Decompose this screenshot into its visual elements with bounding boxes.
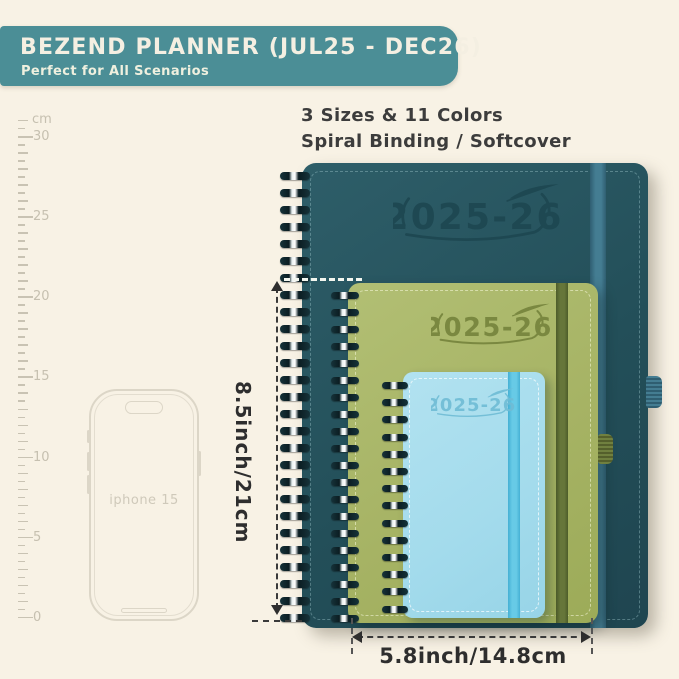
spiral-coil	[280, 563, 310, 571]
ruler-tick	[18, 449, 25, 451]
ruler-tick	[18, 136, 33, 138]
spiral-coil	[280, 223, 310, 231]
spiral-coil	[331, 343, 359, 350]
spiral-coil	[331, 598, 359, 605]
ruler-tick	[18, 232, 28, 234]
spiral-coil	[331, 462, 359, 469]
ruler-tick	[18, 433, 25, 435]
ruler-tick	[18, 368, 25, 370]
ruler-tick	[18, 545, 25, 547]
ruler-tick	[18, 128, 25, 130]
ruler-tick	[18, 497, 25, 499]
product-subtitle: Perfect for All Scenarios	[21, 64, 209, 79]
height-extension-line-bottom	[252, 620, 302, 622]
ruler-tick	[18, 144, 25, 146]
product-banner: BEZEND PLANNER (JUL25 - DEC26) Perfect f…	[0, 26, 458, 86]
ruler-tick	[18, 489, 28, 491]
height-arrow-up-icon	[271, 281, 283, 291]
spiral-coil	[331, 547, 359, 554]
spiral-coil	[280, 461, 310, 469]
ruler-tick	[18, 609, 25, 611]
ruler-tick	[18, 601, 28, 603]
ruler-tick	[18, 192, 25, 194]
planner-large-pen-loop	[646, 376, 662, 408]
ruler-tick	[18, 481, 25, 483]
home-indicator	[121, 608, 167, 613]
spiral-coil	[331, 326, 359, 333]
spiral-coil	[331, 581, 359, 588]
ruler-tick	[18, 441, 28, 443]
product-size-diagram: BEZEND PLANNER (JUL25 - DEC26) Perfect f…	[0, 0, 679, 679]
width-arrow-right-icon	[581, 631, 591, 643]
ruler-tick	[18, 392, 28, 394]
spiral-coil	[331, 564, 359, 571]
spiral-coil	[382, 434, 408, 441]
ruler-tick	[18, 328, 28, 330]
ruler-tick	[18, 160, 25, 162]
ruler-number: 15	[33, 369, 50, 384]
volume-down-button	[87, 475, 90, 494]
ruler-tick	[18, 176, 25, 178]
ruler-tick	[18, 288, 25, 290]
spiral-coil	[382, 382, 408, 389]
year-label: 2025-26	[431, 395, 515, 416]
spiral-coil	[331, 530, 359, 537]
spiral-coil	[331, 394, 359, 401]
spiral-coil	[382, 416, 408, 423]
ruler-tick	[18, 465, 25, 467]
spiral-coil	[382, 468, 408, 475]
ruler-tick	[18, 409, 28, 411]
ruler-tick	[18, 400, 25, 402]
spiral-coil	[382, 571, 408, 578]
ruler-tick	[18, 569, 28, 571]
year-label: 2025-26	[393, 197, 561, 238]
spiral-coil	[382, 588, 408, 595]
ruler-tick	[18, 561, 25, 563]
spiral-coil	[331, 615, 359, 622]
ruler-tick	[18, 320, 25, 322]
year-emblem-graphic: 2025-26	[431, 303, 551, 348]
year-emblem-graphic: 2025-26	[431, 388, 515, 419]
width-dimension-line	[357, 636, 587, 638]
ruler-tick	[18, 224, 25, 226]
spiral-coil	[280, 597, 310, 605]
mute-switch	[87, 430, 90, 443]
ruler-number: 30	[33, 129, 50, 144]
ruler-tick	[18, 304, 25, 306]
spiral-coil	[382, 537, 408, 544]
spiral-coil	[382, 451, 408, 458]
spiral-coil	[280, 172, 310, 180]
spiral-coil	[280, 325, 310, 333]
feature-line-binding: Spiral Binding / Softcover	[301, 131, 571, 152]
spiral-coil	[382, 485, 408, 492]
spiral-coil	[331, 292, 359, 299]
phone-outline: iphone 15	[89, 389, 199, 621]
spiral-coil	[382, 502, 408, 509]
ruler-tick	[18, 296, 33, 298]
ruler-tick	[18, 312, 28, 314]
spiral-coil	[280, 546, 310, 554]
spiral-coil	[382, 399, 408, 406]
ruler-tick	[18, 529, 25, 531]
ruler-tick	[18, 521, 28, 523]
ruler-tick	[18, 280, 28, 282]
spiral-coil	[280, 444, 310, 452]
ruler-tick	[18, 537, 33, 539]
ruler-tick	[18, 457, 33, 459]
feature-line-sizes-colors: 3 Sizes & 11 Colors	[301, 105, 503, 126]
planner-medium-year-emblem: 2025-26	[431, 303, 551, 348]
ruler-tick	[18, 120, 28, 122]
ruler-number: 25	[33, 209, 50, 224]
ruler-number: 0	[33, 610, 41, 625]
width-extension-tick-right	[591, 618, 593, 654]
spiral-coil	[331, 445, 359, 452]
ruler-tick	[18, 617, 33, 619]
ruler-tick	[18, 344, 28, 346]
height-arrow-down-icon	[271, 605, 283, 615]
ruler-tick	[18, 577, 25, 579]
phone-label: iphone 15	[91, 493, 197, 508]
dynamic-island	[125, 401, 163, 414]
ruler-tick	[18, 248, 28, 250]
width-arrow-left-icon	[352, 631, 362, 643]
ruler-tick	[18, 505, 28, 507]
spiral-coil	[280, 478, 310, 486]
spiral-coil	[280, 427, 310, 435]
ruler-tick	[18, 553, 28, 555]
spiral-coil	[280, 342, 310, 350]
spiral-coil	[382, 554, 408, 561]
spiral-coil	[331, 360, 359, 367]
spiral-coil	[331, 377, 359, 384]
power-button	[198, 451, 201, 476]
spiral-coil	[331, 428, 359, 435]
spiral-coil	[280, 291, 310, 299]
ruler-tick	[18, 417, 25, 419]
spiral-coil	[280, 308, 310, 316]
ruler-tick	[18, 593, 25, 595]
ruler-tick	[18, 473, 28, 475]
spiral-coil	[280, 410, 310, 418]
product-title: BEZEND PLANNER (JUL25 - DEC26)	[20, 35, 482, 60]
spiral-coil	[280, 512, 310, 520]
spiral-coil	[280, 529, 310, 537]
year-label: 2025-26	[431, 313, 551, 343]
planner-medium-elastic-band	[556, 283, 568, 623]
ruler-tick	[18, 208, 25, 210]
ruler-tick	[18, 360, 28, 362]
ruler-tick	[18, 425, 28, 427]
ruler-tick	[18, 272, 25, 274]
ruler-tick	[18, 352, 25, 354]
year-emblem-graphic: 2025-26	[393, 183, 561, 246]
height-extension-line-top	[284, 278, 362, 281]
ruler-number: 10	[33, 450, 50, 465]
height-dimension-line	[276, 287, 278, 609]
spiral-coil	[280, 495, 310, 503]
spiral-coil	[280, 359, 310, 367]
ruler-tick	[18, 200, 28, 202]
planner-large-year-emblem: 2025-26	[393, 183, 561, 246]
height-dimension-label: 8.5inch/21cm	[231, 381, 255, 543]
planner-medium-pen-loop	[598, 434, 613, 464]
spiral-coil	[280, 240, 310, 248]
spiral-coil	[280, 206, 310, 214]
ruler-tick	[18, 376, 33, 378]
ruler-tick	[18, 336, 25, 338]
spiral-coil	[331, 496, 359, 503]
spiral-coil	[331, 479, 359, 486]
ruler-tick	[18, 152, 28, 154]
spiral-coil	[280, 376, 310, 384]
spiral-coil	[382, 606, 408, 613]
spiral-coil	[331, 309, 359, 316]
spiral-coil	[382, 520, 408, 527]
spiral-coil	[280, 580, 310, 588]
ruler-tick	[18, 256, 25, 258]
ruler-tick	[18, 264, 28, 266]
spiral-coil	[280, 393, 310, 401]
spiral-coil	[331, 513, 359, 520]
ruler-tick	[18, 240, 25, 242]
spiral-coil	[331, 411, 359, 418]
ruler-tick	[18, 384, 25, 386]
ruler-tick	[18, 585, 28, 587]
ruler-number: 5	[33, 530, 41, 545]
planner-small-year-emblem: 2025-26	[431, 388, 515, 419]
spiral-coil	[280, 189, 310, 197]
ruler-tick	[18, 216, 33, 218]
ruler-unit-label: cm	[32, 112, 52, 127]
ruler-tick	[18, 168, 28, 170]
volume-up-button	[87, 452, 90, 471]
spiral-coil	[280, 257, 310, 265]
ruler-tick	[18, 513, 25, 515]
ruler-tick	[18, 184, 28, 186]
width-dimension-label: 5.8inch/14.8cm	[363, 644, 583, 668]
ruler-number: 20	[33, 289, 50, 304]
